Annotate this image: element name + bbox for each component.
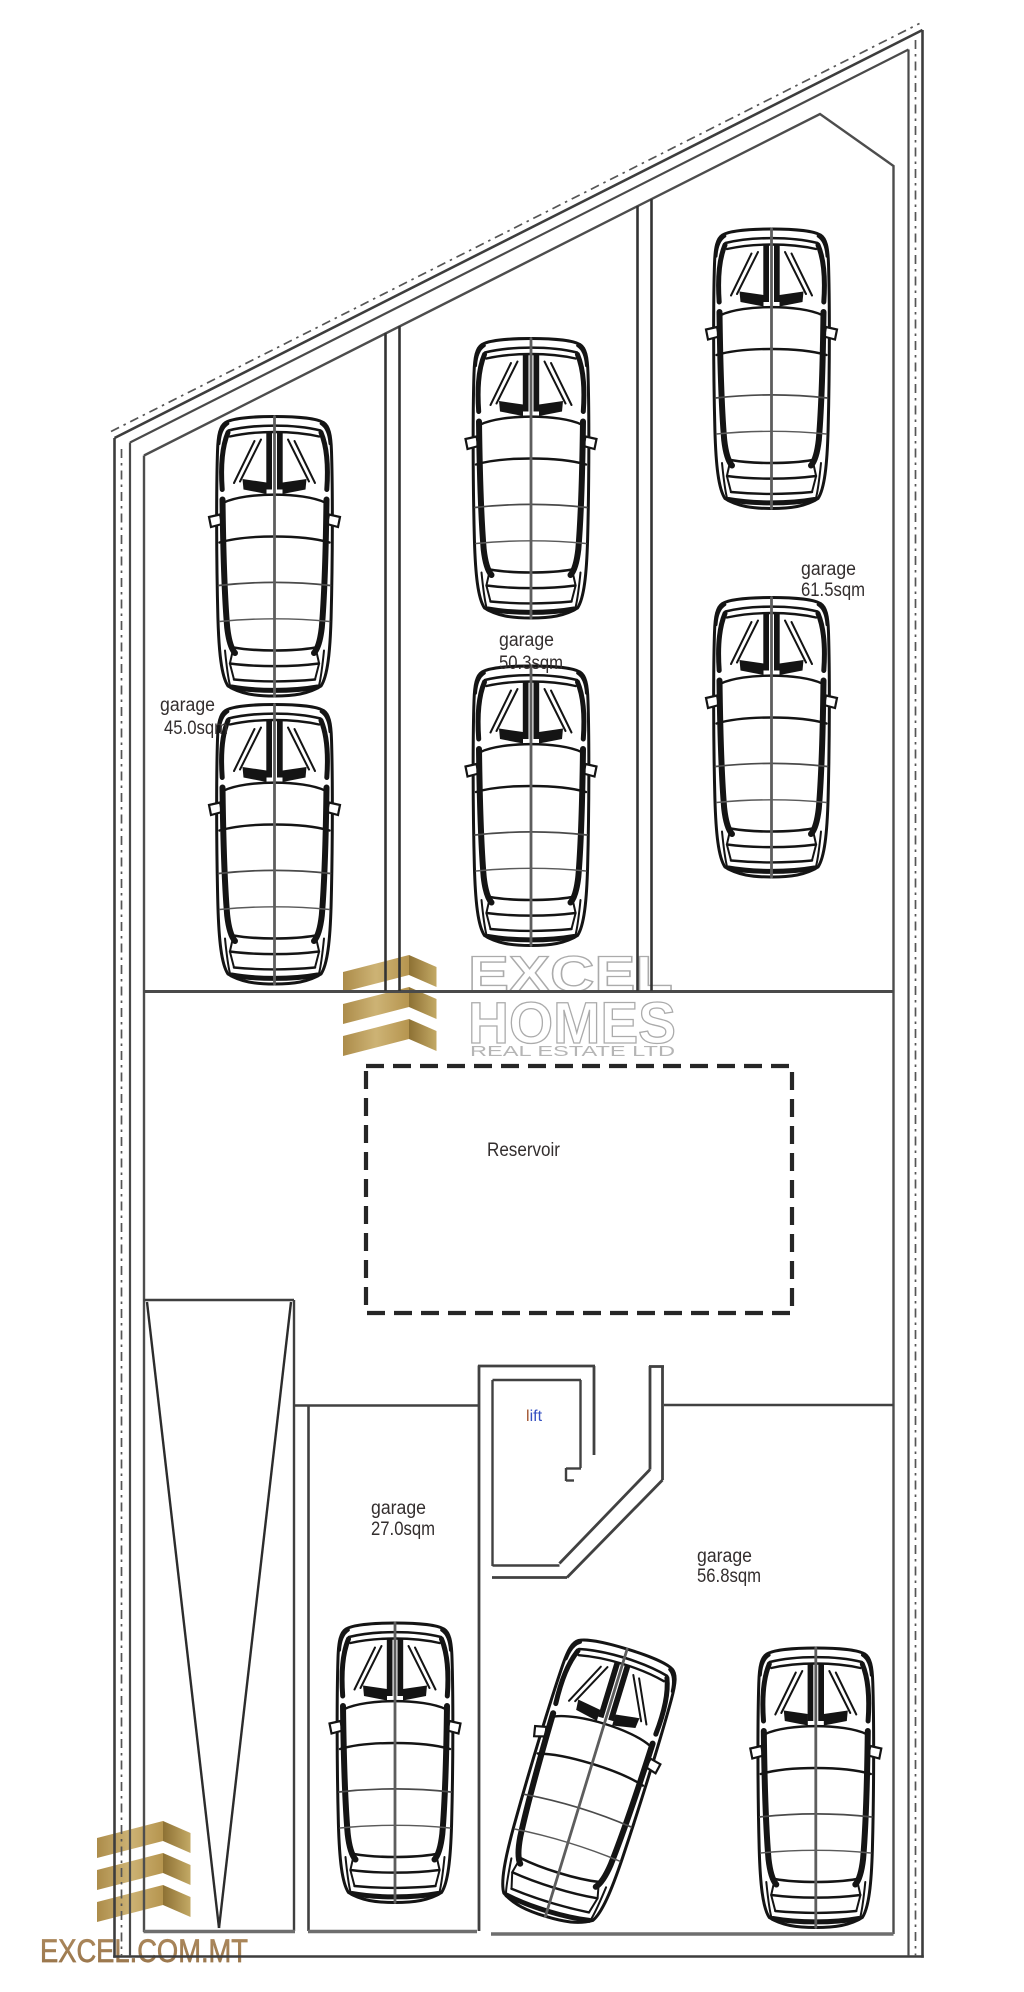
svg-text:REAL ESTATE LTD: REAL ESTATE LTD: [470, 1043, 675, 1060]
svg-text:45.0sqm: 45.0sqm: [164, 718, 228, 739]
svg-text:61.5sqm: 61.5sqm: [801, 580, 865, 601]
svg-text:56.8sqm: 56.8sqm: [697, 1566, 761, 1587]
svg-text:Reservoir: Reservoir: [487, 1140, 561, 1161]
svg-text:lift: lift: [526, 1408, 543, 1425]
svg-text:garage: garage: [499, 630, 554, 651]
svg-text:garage: garage: [697, 1546, 752, 1567]
svg-text:garage: garage: [371, 1498, 426, 1519]
svg-text:EXCEL.COM.MT: EXCEL.COM.MT: [40, 1933, 248, 1969]
svg-text:garage: garage: [160, 695, 215, 716]
svg-text:27.0sqm: 27.0sqm: [371, 1519, 435, 1540]
svg-text:50.3sqm: 50.3sqm: [499, 653, 563, 674]
svg-text:garage: garage: [801, 559, 856, 580]
